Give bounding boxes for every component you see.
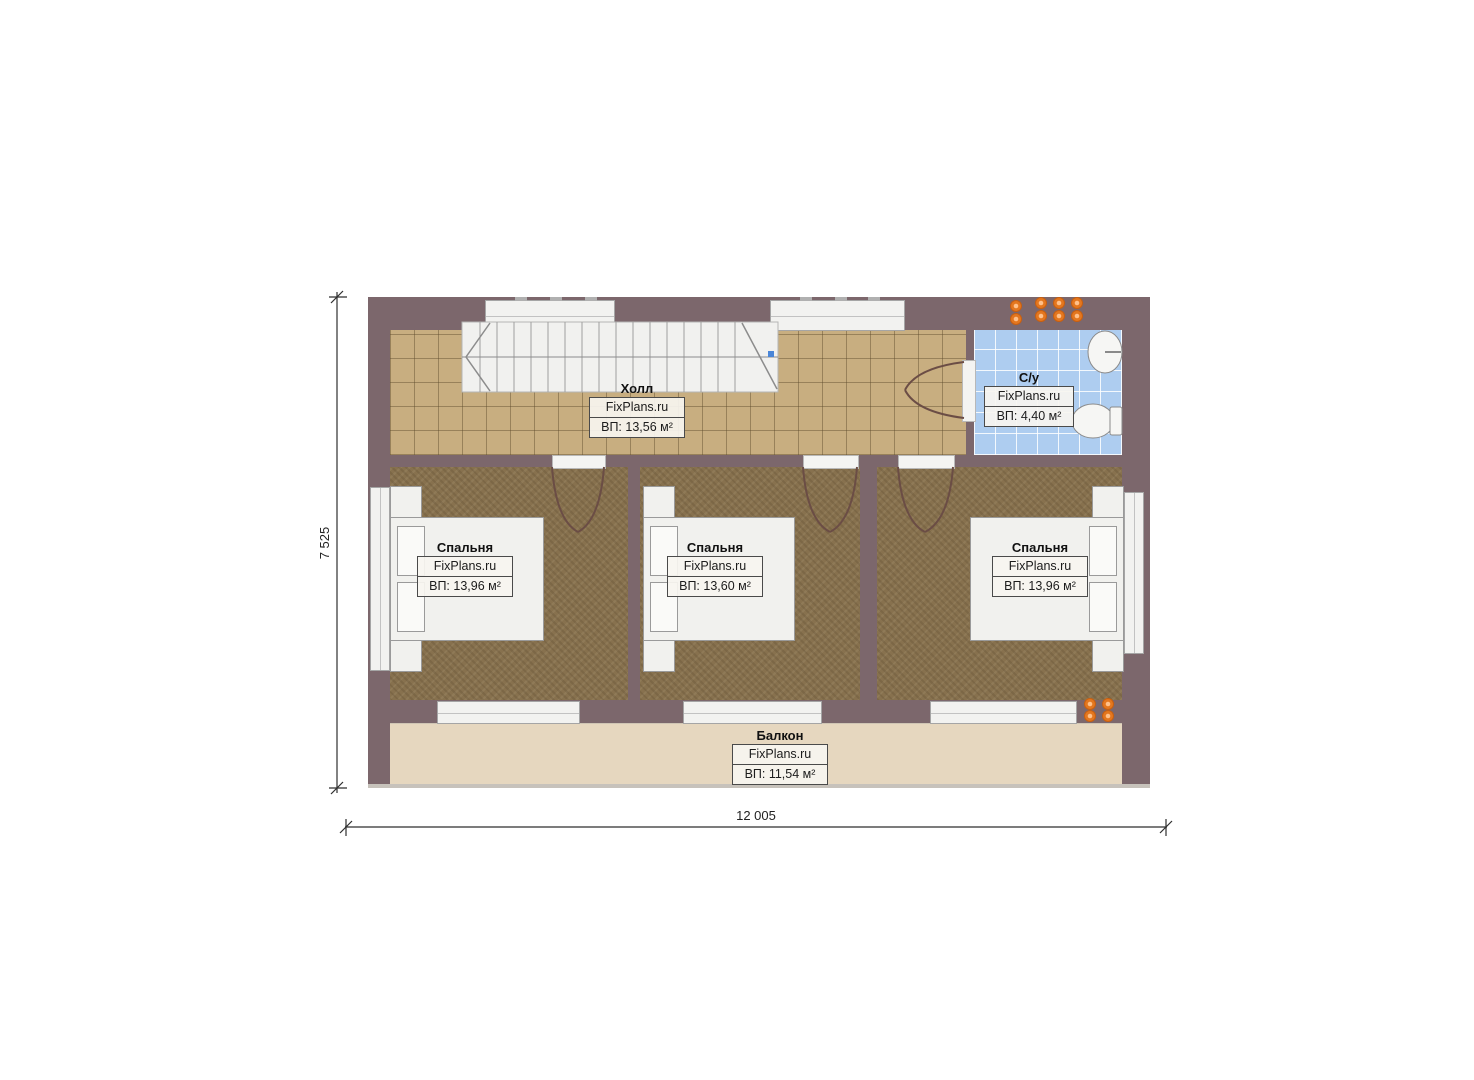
nightstand — [1092, 640, 1124, 672]
room-label-bedroom-middle: Спальня FixPlans.ru ВП: 13,60 м² — [667, 540, 763, 597]
room-label-bedroom-right: Спальня FixPlans.ru ВП: 13,96 м² — [992, 540, 1088, 597]
wall-hall-bedrooms — [390, 455, 1122, 467]
vent-mark — [835, 297, 847, 301]
vent-mark — [550, 297, 562, 301]
room-label-bathroom: С/у FixPlans.ru ВП: 4,40 м² — [984, 370, 1074, 427]
room-name: Спальня — [417, 540, 513, 555]
room-label-balcony: Балкон FixPlans.ru ВП: 11,54 м² — [732, 728, 828, 785]
floor-plan: Холл FixPlans.ru ВП: 13,56 м² С/у FixPla… — [0, 0, 1474, 1080]
brand-text: FixPlans.ru — [993, 557, 1087, 576]
window — [930, 701, 1077, 724]
dimension-width-label: 12 005 — [716, 808, 796, 824]
brand-text: FixPlans.ru — [985, 387, 1073, 406]
room-area: ВП: 4,40 м² — [985, 406, 1073, 426]
brand-text: FixPlans.ru — [590, 398, 684, 417]
room-label-hall: Холл FixPlans.ru ВП: 13,56 м² — [589, 381, 685, 438]
nightstand — [390, 640, 422, 672]
nightstand — [643, 640, 675, 672]
room-area: ВП: 13,56 м² — [590, 417, 684, 437]
pillow — [1089, 582, 1117, 632]
window — [683, 701, 822, 724]
brand-text: FixPlans.ru — [418, 557, 512, 576]
room-area: ВП: 13,96 м² — [418, 576, 512, 596]
room-area: ВП: 11,54 м² — [733, 764, 827, 784]
room-area: ВП: 13,96 м² — [993, 576, 1087, 596]
door-opening-bedroom-left — [552, 455, 606, 469]
vent-mark — [800, 297, 812, 301]
wall-bedroom-divider-2 — [860, 455, 877, 723]
vent-mark — [585, 297, 597, 301]
nightstand — [1092, 486, 1124, 518]
vent-mark — [515, 297, 527, 301]
window — [370, 487, 390, 671]
room-label-bedroom-left: Спальня FixPlans.ru ВП: 13,96 м² — [417, 540, 513, 597]
pillow — [1089, 526, 1117, 576]
vent-mark — [868, 297, 880, 301]
window — [437, 701, 580, 724]
window — [770, 300, 905, 331]
brand-text: FixPlans.ru — [668, 557, 762, 576]
wall-bedroom-divider-1 — [628, 455, 640, 723]
room-name: Холл — [589, 381, 685, 396]
window — [485, 300, 615, 331]
nightstand — [390, 486, 422, 518]
door-opening-bathroom — [962, 360, 976, 422]
nightstand — [643, 486, 675, 518]
dimension-height-label: 7 525 — [317, 500, 333, 586]
window — [1124, 492, 1144, 654]
room-name: Спальня — [667, 540, 763, 555]
brand-text: FixPlans.ru — [733, 745, 827, 764]
door-opening-bedroom-right — [898, 455, 955, 469]
room-name: Балкон — [732, 728, 828, 743]
room-name: С/у — [984, 370, 1074, 385]
room-area: ВП: 13,60 м² — [668, 576, 762, 596]
room-name: Спальня — [992, 540, 1088, 555]
door-opening-bedroom-middle — [803, 455, 859, 469]
